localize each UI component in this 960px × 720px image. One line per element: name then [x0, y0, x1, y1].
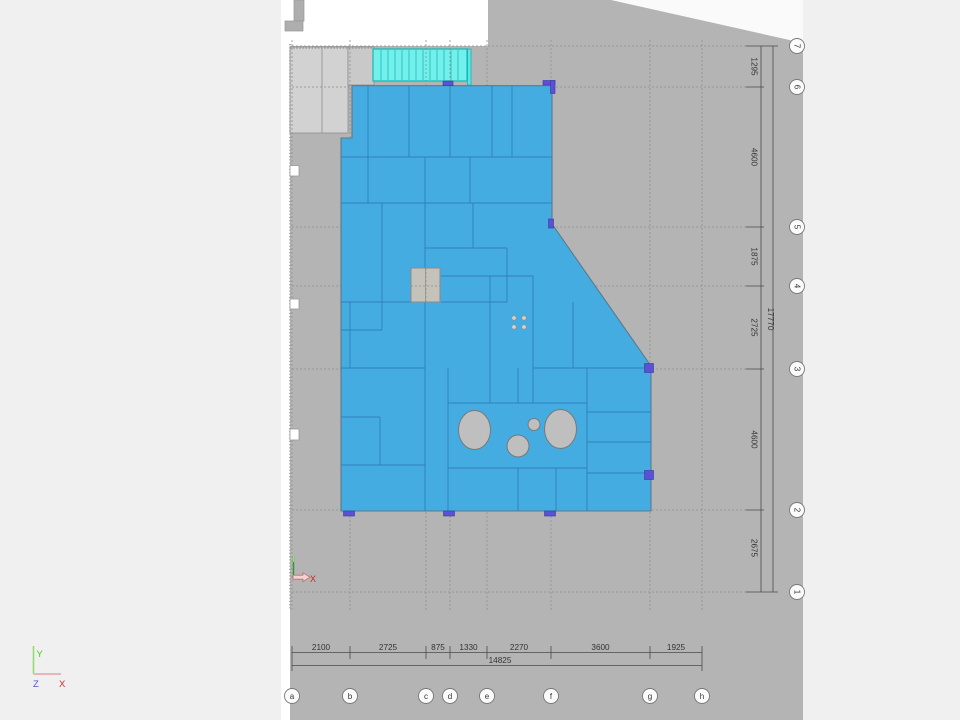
- bottom-dim-label: 1925: [667, 643, 686, 652]
- stair-run: [373, 49, 467, 81]
- opening-large-left: [459, 411, 491, 450]
- column-marker: [344, 511, 355, 516]
- grid-bubble-label: c: [424, 692, 428, 701]
- right-total-dimension: 17770: [766, 308, 775, 331]
- bottom-dim-label: 2725: [379, 643, 398, 652]
- bottom-dim-label: 875: [431, 643, 445, 652]
- column-marker: [443, 81, 453, 86]
- sheet-edge-strip: [281, 0, 290, 720]
- wall-opening-tick: [290, 429, 299, 440]
- y-axis-label: Y: [37, 649, 44, 660]
- grid-bubble-label: b: [348, 692, 353, 701]
- stair-side-wall: [468, 49, 472, 85]
- bottom-dim-label: 2270: [510, 643, 529, 652]
- grid-bubble-label: e: [485, 692, 490, 701]
- column-marker: [549, 219, 554, 228]
- opening-small: [528, 419, 540, 431]
- right-dim-label: 2675: [750, 539, 759, 558]
- x-axis-label: X: [59, 679, 66, 690]
- drawing-canvas[interactable]: X 14825 17770 21002725875133022703600192…: [0, 0, 960, 720]
- right-dim-label: 1295: [750, 57, 759, 76]
- right-dim-label: 1875: [750, 247, 759, 266]
- grid-bubble-label: h: [700, 692, 704, 701]
- grid-bubble-label: a: [290, 692, 295, 701]
- top-left-white-area: [290, 0, 488, 46]
- top-left-tab-step: [285, 21, 303, 31]
- shaft-void: [411, 268, 440, 302]
- bottom-total-dimension: 14825: [489, 656, 512, 665]
- z-axis-label: Z: [33, 679, 39, 690]
- wall-opening-tick: [290, 299, 299, 309]
- right-dim-label: 2725: [750, 318, 759, 337]
- opening-large-right: [545, 410, 577, 449]
- cad-viewport[interactable]: X 14825 17770 21002725875133022703600192…: [0, 0, 960, 720]
- column-marker: [551, 81, 556, 94]
- grid-bubble-label: 2: [793, 508, 802, 513]
- bottom-dim-label: 1330: [459, 643, 478, 652]
- grid-bubble-label: 4: [793, 284, 802, 289]
- bottom-dim-label: 2100: [312, 643, 331, 652]
- grid-bubble-label: d: [448, 692, 452, 701]
- grid-bubble-label: 7: [793, 44, 802, 49]
- column-marker: [444, 511, 455, 516]
- grid-bubble-label: 3: [793, 367, 802, 372]
- grid-bubble-label: g: [648, 692, 652, 701]
- bottom-dim-label: 3600: [591, 643, 610, 652]
- grid-bubble-label: 6: [793, 85, 802, 90]
- wall-opening-tick: [290, 166, 299, 177]
- top-left-tab: [294, 0, 304, 21]
- grid-bubble-label: 5: [793, 225, 802, 230]
- right-dim-label: 4600: [750, 430, 759, 449]
- opening-medium: [507, 435, 529, 457]
- column-marker: [645, 471, 654, 480]
- right-dim-label: 4600: [750, 148, 759, 167]
- column-marker: [645, 364, 654, 373]
- adjacent-building: [290, 47, 348, 133]
- column-marker: [545, 511, 556, 516]
- ucs-x-label: X: [310, 574, 316, 584]
- grid-bubble-label: 1: [793, 590, 802, 595]
- adjacent-building-panel: [348, 47, 374, 85]
